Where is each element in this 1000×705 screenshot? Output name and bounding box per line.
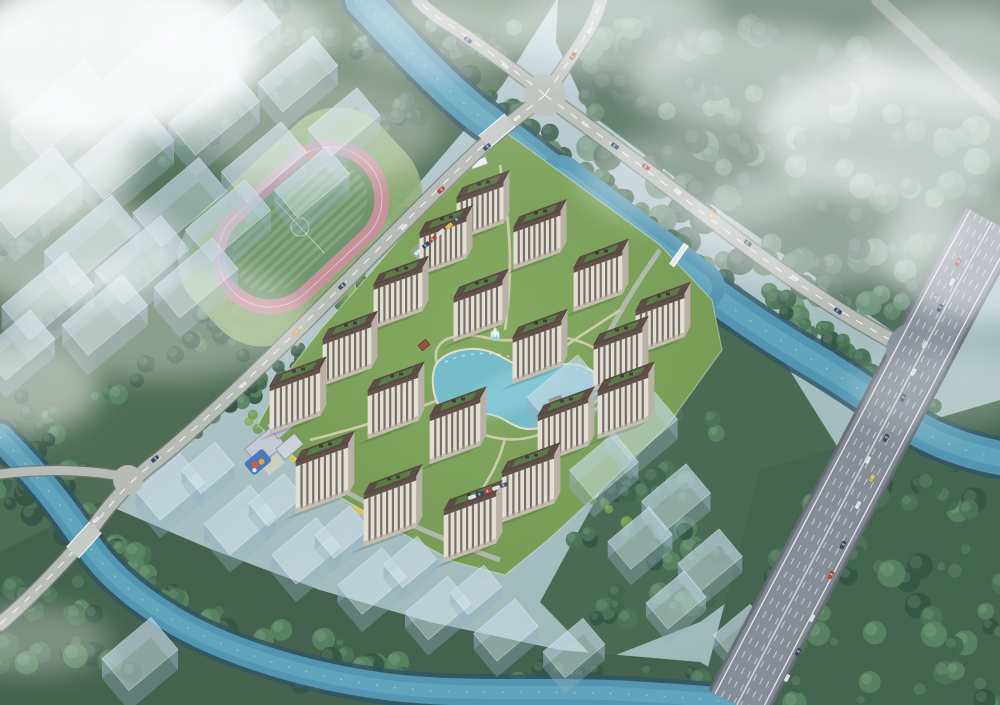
color-cast-overlay — [0, 0, 1000, 705]
aerial-render-image — [0, 0, 1000, 705]
scene-canvas — [0, 0, 1000, 705]
